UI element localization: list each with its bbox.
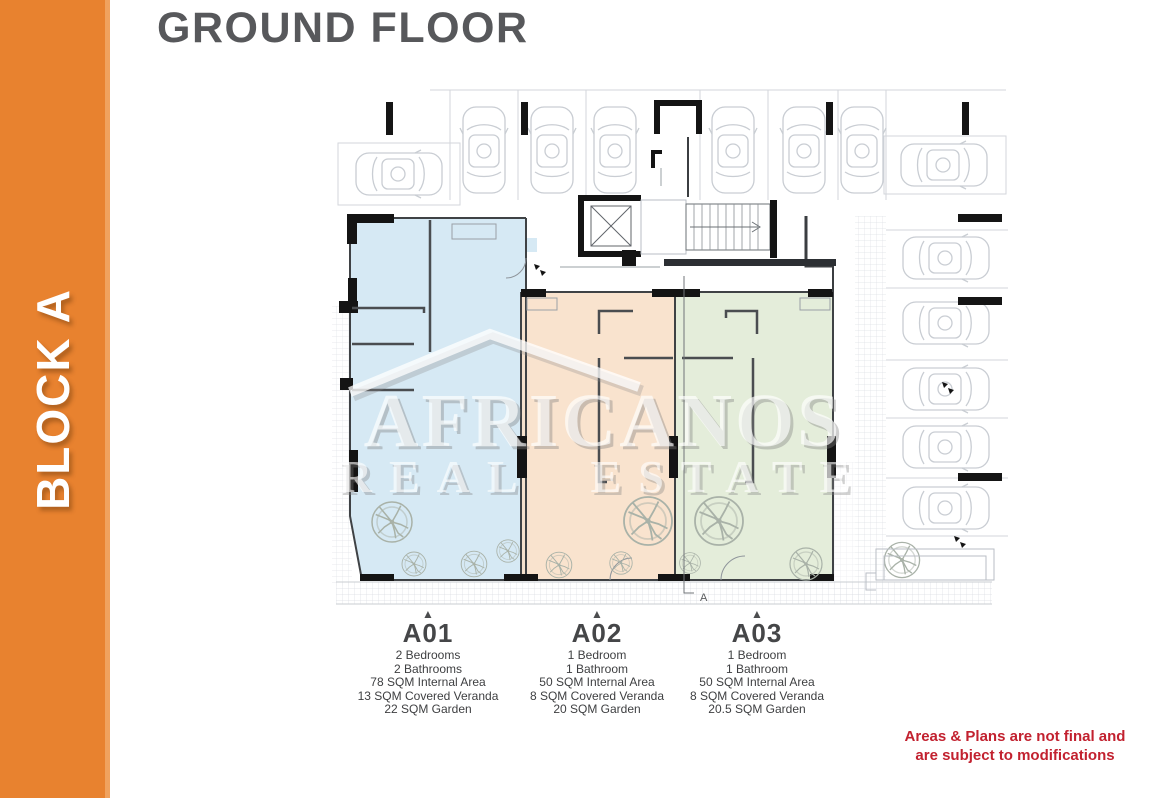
unit-detail-line: 78 SQM Internal Area [333,676,523,690]
page: BLOCK A GROUND FLOOR [0,0,1163,798]
unit-detail-line: 8 SQM Covered Veranda [662,690,852,704]
svg-text:REAL ESTATE: REAL ESTATE [339,451,867,502]
page-title: GROUND FLOOR [157,4,529,53]
unit-detail-line: 2 Bedrooms [333,649,523,663]
building-core [560,198,836,292]
disclaimer-line: are subject to modifications [885,746,1145,765]
entrance-walls [653,103,699,197]
unit-detail-line: 2 Bathrooms [333,663,523,677]
unit-detail-line: 50 SQM Internal Area [662,676,852,690]
unit-label-a03: ▲ A03 1 Bedroom 1 Bathroom 50 SQM Intern… [662,608,852,717]
svg-text:A: A [700,592,708,604]
unit-detail-line: 20.5 SQM Garden [662,703,852,717]
unit-detail-line: 13 SQM Covered Veranda [333,690,523,704]
block-band: BLOCK A [0,0,110,798]
disclaimer-line: Areas & Plans are not final and [885,727,1145,746]
disclaimer: Areas & Plans are not final and are subj… [885,727,1145,765]
unit-detail-line: 22 SQM Garden [333,703,523,717]
unit-detail-line: 1 Bathroom [662,663,852,677]
unit-detail-line: 1 Bedroom [662,649,852,663]
unit-code: A03 [662,620,852,647]
unit-code: A01 [333,620,523,647]
unit-label-a01: ▲ A01 2 Bedrooms 2 Bathrooms 78 SQM Inte… [333,608,523,717]
floor-plan: A AFRICANOS AFRICANOS REAL ESTATE REAL E… [330,82,1020,610]
block-label: BLOCK A [26,288,80,510]
